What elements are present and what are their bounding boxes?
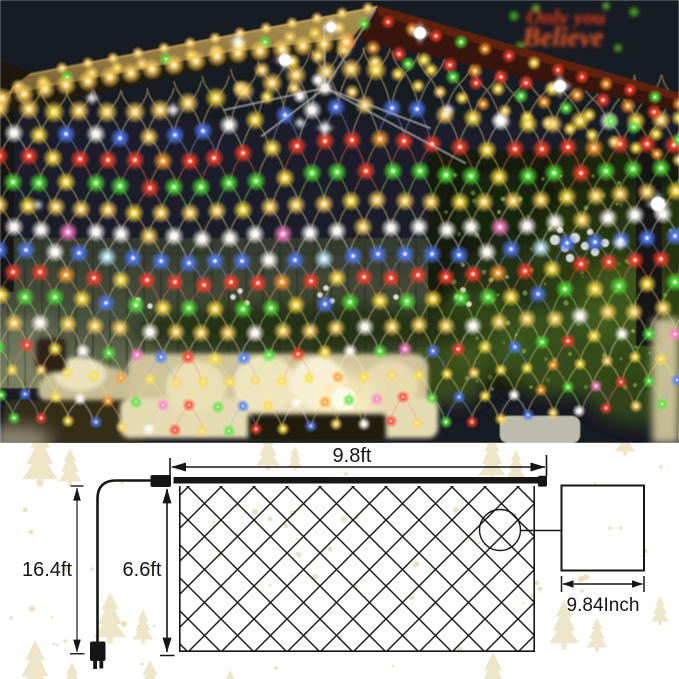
svg-text:6.6ft: 6.6ft: [123, 559, 162, 581]
svg-text:9.8ft: 9.8ft: [333, 445, 372, 467]
svg-text:16.4ft: 16.4ft: [22, 559, 72, 581]
svg-text:9.84Inch: 9.84Inch: [567, 595, 640, 616]
